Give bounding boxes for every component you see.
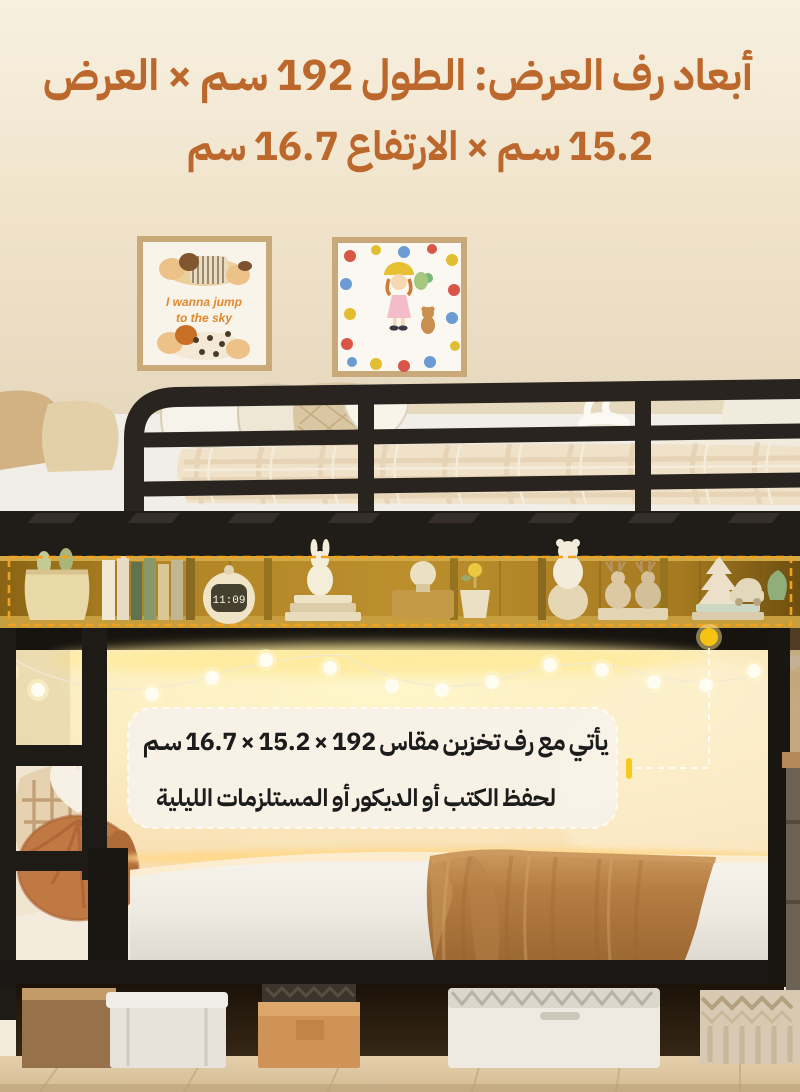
svg-text:to the sky: to the sky	[176, 311, 233, 325]
svg-text:I wanna jump: I wanna jump	[166, 295, 242, 309]
svg-text:11:09: 11:09	[212, 595, 245, 607]
